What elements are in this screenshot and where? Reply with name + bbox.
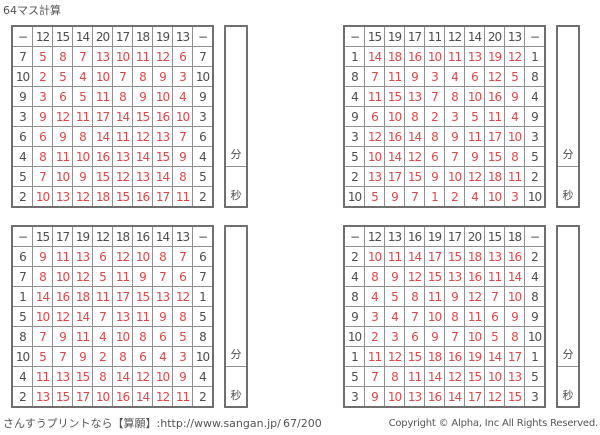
grid-row: 411151378101694 <box>344 87 545 107</box>
calc-grid-top-left: −1215142017181913−7587131011126710254107… <box>11 25 248 208</box>
answer-cell: 1 <box>425 187 445 208</box>
answer-cell: 16 <box>53 287 73 307</box>
row-header-cell: 9 <box>193 87 214 107</box>
answer-cell: 16 <box>93 147 113 167</box>
operator-cell: − <box>193 26 214 47</box>
grid-row: 105792864310 <box>12 347 213 367</box>
answer-cell: 15 <box>53 387 73 408</box>
answer-cell: 11 <box>485 107 505 127</box>
calc-table: −1517191218161413−6911136121087678101251… <box>11 225 214 408</box>
answer-cell: 4 <box>445 67 465 87</box>
answer-cell: 9 <box>73 347 93 367</box>
answer-cell: 10 <box>173 107 193 127</box>
answer-cell: 16 <box>485 87 505 107</box>
answer-cell: 10 <box>485 367 505 387</box>
answer-cell: 10 <box>385 107 405 127</box>
answer-cell: 4 <box>505 107 525 127</box>
answer-cell: 7 <box>173 247 193 267</box>
row-header-cell: 4 <box>344 87 365 107</box>
answer-cell: 14 <box>33 287 53 307</box>
row-header-cell: 5 <box>12 307 33 327</box>
grid-row: 75871310111267 <box>12 47 213 67</box>
answer-cell: 8 <box>445 307 465 327</box>
col-header-cell: 13 <box>505 26 525 47</box>
row-header-cell: 8 <box>525 287 546 307</box>
answer-cell: 7 <box>173 127 193 147</box>
minutes-write-area <box>226 227 246 346</box>
row-header-cell: 6 <box>12 247 33 267</box>
answer-cell: 3 <box>173 67 193 87</box>
answer-cell: 4 <box>73 67 93 87</box>
row-header-cell: 6 <box>193 247 214 267</box>
answer-cell: 13 <box>133 167 153 187</box>
answer-cell: 5 <box>505 67 525 87</box>
page-title: 64マス計算 <box>3 2 61 18</box>
answer-cell: 11 <box>113 127 133 147</box>
grid-row: 7810125119767 <box>12 267 213 287</box>
answer-cell: 11 <box>385 247 405 267</box>
col-header-cell: 20 <box>485 26 505 47</box>
row-header-cell: 7 <box>193 267 214 287</box>
answer-cell: 12 <box>505 47 525 67</box>
answer-cell: 14 <box>425 367 445 387</box>
col-header-cell: 16 <box>133 226 153 247</box>
answer-cell: 5 <box>173 327 193 347</box>
grid-row: 111121518161914171 <box>344 347 545 367</box>
row-header-cell: 3 <box>525 127 546 147</box>
operator-cell: − <box>12 26 33 47</box>
seconds-label: 秒 <box>226 166 246 206</box>
answer-cell: 6 <box>173 47 193 67</box>
answer-cell: 3 <box>505 187 525 208</box>
answer-cell: 13 <box>113 307 133 327</box>
col-header-cell: 11 <box>425 26 445 47</box>
answer-cell: 14 <box>385 147 405 167</box>
answer-cell: 9 <box>445 127 465 147</box>
answer-cell: 18 <box>73 287 93 307</box>
row-header-cell: 9 <box>525 107 546 127</box>
answer-cell: 15 <box>405 347 425 367</box>
answer-cell: 12 <box>485 387 505 408</box>
answer-cell: 9 <box>133 267 153 287</box>
answer-cell: 11 <box>53 147 73 167</box>
answer-cell: 13 <box>73 247 93 267</box>
answer-cell: 14 <box>365 47 385 67</box>
answer-cell: 8 <box>33 147 53 167</box>
calc-table: −1215142017181913−7587131011126710254107… <box>11 25 214 208</box>
answer-cell: 11 <box>53 247 73 267</box>
row-header-cell: 8 <box>344 67 365 87</box>
answer-cell: 10 <box>505 287 525 307</box>
answer-cell: 9 <box>173 147 193 167</box>
answer-cell: 10 <box>33 187 53 208</box>
operator-cell: − <box>193 226 214 247</box>
col-header-cell: 12 <box>445 26 465 47</box>
answer-cell: 6 <box>465 67 485 87</box>
answer-cell: 9 <box>425 327 445 347</box>
col-header-cell: 12 <box>33 26 53 47</box>
answer-cell: 6 <box>173 267 193 287</box>
operator-cell: − <box>525 26 546 47</box>
answer-cell: 8 <box>405 287 425 307</box>
answer-cell: 2 <box>93 347 113 367</box>
grid-row: −1215142017181913− <box>12 26 213 47</box>
answer-cell: 18 <box>93 187 113 208</box>
answer-cell: 14 <box>153 167 173 187</box>
answer-cell: 6 <box>53 87 73 107</box>
answer-cell: 14 <box>73 307 93 327</box>
answer-cell: 12 <box>113 247 133 267</box>
answer-cell: 12 <box>153 47 173 67</box>
answer-cell: 3 <box>425 67 445 87</box>
answer-cell: 9 <box>53 327 73 347</box>
answer-cell: 4 <box>153 347 173 367</box>
answer-cell: 19 <box>485 47 505 67</box>
row-header-cell: 8 <box>525 67 546 87</box>
row-header-cell: 10 <box>525 187 546 208</box>
answer-cell: 16 <box>133 187 153 208</box>
grid-row: 934710811699 <box>344 307 545 327</box>
calc-grid-bottom-right: −1213161917201518−2101114171518131624891… <box>343 225 580 408</box>
answer-cell: 2 <box>425 107 445 127</box>
footer-copyright: Copyright © Alpha, Inc All Rights Reserv… <box>389 418 598 429</box>
answer-cell: 5 <box>53 67 73 87</box>
answer-cell: 18 <box>485 167 505 187</box>
answer-cell: 13 <box>53 367 73 387</box>
answer-cell: 9 <box>505 87 525 107</box>
answer-cell: 10 <box>425 307 445 327</box>
answer-cell: 8 <box>73 127 93 147</box>
answer-cell: 8 <box>365 267 385 287</box>
footer-page-number: 67/200 <box>283 417 322 430</box>
answer-cell: 15 <box>485 147 505 167</box>
row-header-cell: 3 <box>12 107 33 127</box>
row-header-cell: 10 <box>525 327 546 347</box>
answer-cell: 7 <box>405 307 425 327</box>
grid-row: −1519171112142013− <box>344 26 545 47</box>
answer-cell: 5 <box>365 187 385 208</box>
answer-cell: 12 <box>465 287 485 307</box>
answer-cell: 13 <box>485 247 505 267</box>
row-header-cell: 4 <box>525 267 546 287</box>
answer-cell: 13 <box>53 187 73 208</box>
answer-cell: 4 <box>173 87 193 107</box>
answer-cell: 12 <box>445 367 465 387</box>
answer-cell: 12 <box>385 347 405 367</box>
answer-cell: 4 <box>465 187 485 208</box>
answer-cell: 8 <box>385 367 405 387</box>
answer-cell: 10 <box>365 147 385 167</box>
answer-cell: 8 <box>53 47 73 67</box>
answer-cell: 11 <box>405 367 425 387</box>
answer-cell: 15 <box>405 167 425 187</box>
grid-row: 8458119127108 <box>344 287 545 307</box>
answer-cell: 10 <box>93 387 113 408</box>
answer-cell: 8 <box>505 147 525 167</box>
answer-cell: 13 <box>465 47 485 67</box>
answer-cell: 7 <box>425 87 445 107</box>
answer-cell: 8 <box>445 87 465 107</box>
answer-cell: 15 <box>133 287 153 307</box>
answer-cell: 11 <box>365 347 385 367</box>
minutes-label: 分 <box>226 146 246 166</box>
col-header-cell: 12 <box>93 226 113 247</box>
row-header-cell: 10 <box>193 67 214 87</box>
answer-cell: 14 <box>405 247 425 267</box>
answer-cell: 3 <box>385 327 405 347</box>
col-header-cell: 19 <box>73 226 93 247</box>
answer-cell: 12 <box>173 287 193 307</box>
answer-cell: 10 <box>485 187 505 208</box>
answer-cell: 7 <box>153 267 173 287</box>
row-header-cell: 10 <box>12 67 33 87</box>
answer-cell: 11 <box>93 87 113 107</box>
answer-cell: 3 <box>365 307 385 327</box>
answer-cell: 10 <box>465 87 485 107</box>
answer-cell: 6 <box>485 307 505 327</box>
answer-cell: 3 <box>33 87 53 107</box>
calc-table: −1519171112142013−1141816101113191218711… <box>343 25 546 208</box>
row-header-cell: 1 <box>193 287 214 307</box>
calc-table: −1213161917201518−2101114171518131624891… <box>343 225 546 408</box>
answer-cell: 7 <box>93 307 113 327</box>
answer-cell: 15 <box>445 247 465 267</box>
answer-cell: 12 <box>53 107 73 127</box>
minutes-write-area <box>558 27 578 146</box>
grid-row: 21317159101218112 <box>344 167 545 187</box>
row-header-cell: 3 <box>193 107 214 127</box>
col-header-cell: 18 <box>113 226 133 247</box>
answer-cell: 6 <box>365 107 385 127</box>
row-header-cell: 5 <box>12 167 33 187</box>
row-header-cell: 1 <box>525 347 546 367</box>
grid-row: 5781114121510135 <box>344 367 545 387</box>
answer-cell: 12 <box>133 367 153 387</box>
answer-cell: 10 <box>73 147 93 167</box>
answer-cell: 16 <box>465 267 485 287</box>
seconds-label: 秒 <box>226 366 246 406</box>
answer-cell: 5 <box>465 107 485 127</box>
answer-cell: 16 <box>445 347 465 367</box>
row-header-cell: 7 <box>193 47 214 67</box>
answer-cell: 9 <box>365 387 385 408</box>
row-header-cell: 3 <box>344 387 365 408</box>
col-header-cell: 15 <box>53 26 73 47</box>
answer-cell: 4 <box>93 327 113 347</box>
answer-cell: 9 <box>465 147 485 167</box>
answer-cell: 13 <box>153 127 173 147</box>
answer-cell: 11 <box>73 327 93 347</box>
answer-cell: 14 <box>133 387 153 408</box>
col-header-cell: 14 <box>465 26 485 47</box>
answer-cell: 7 <box>33 167 53 187</box>
grid-row: 114181610111319121 <box>344 47 545 67</box>
time-box: 分 秒 <box>224 25 248 208</box>
answer-cell: 9 <box>53 127 73 147</box>
answer-cell: 13 <box>405 387 425 408</box>
answer-cell: 8 <box>173 167 193 187</box>
answer-cell: 6 <box>425 147 445 167</box>
grid-row: 3121614891117103 <box>344 127 545 147</box>
grid-row: 871193461258 <box>344 67 545 87</box>
row-header-cell: 2 <box>12 187 33 208</box>
row-header-cell: 9 <box>344 307 365 327</box>
col-header-cell: 14 <box>153 226 173 247</box>
col-header-cell: 16 <box>405 226 425 247</box>
answer-cell: 7 <box>445 327 465 347</box>
answer-cell: 15 <box>73 367 93 387</box>
answer-cell: 13 <box>93 47 113 67</box>
answer-cell: 17 <box>505 347 525 367</box>
grid-row: 4811101613141594 <box>12 147 213 167</box>
answer-cell: 6 <box>133 347 153 367</box>
answer-cell: 12 <box>405 147 425 167</box>
grid-row: −1213161917201518− <box>344 226 545 247</box>
row-header-cell: 2 <box>12 387 33 408</box>
col-header-cell: 13 <box>385 226 405 247</box>
row-header-cell: 5 <box>525 147 546 167</box>
answer-cell: 11 <box>173 187 193 208</box>
row-header-cell: 1 <box>525 47 546 67</box>
row-header-cell: 5 <box>193 167 214 187</box>
answer-cell: 14 <box>485 347 505 367</box>
grid-row: 1023697105810 <box>344 327 545 347</box>
answer-cell: 16 <box>153 107 173 127</box>
row-header-cell: 5 <box>344 367 365 387</box>
row-header-cell: 3 <box>344 127 365 147</box>
answer-cell: 2 <box>33 67 53 87</box>
row-header-cell: 6 <box>12 127 33 147</box>
answer-cell: 11 <box>425 287 445 307</box>
col-header-cell: 17 <box>53 226 73 247</box>
minutes-label: 分 <box>558 146 578 166</box>
grid-row: 4111315814121094 <box>12 367 213 387</box>
answer-cell: 10 <box>365 247 385 267</box>
answer-cell: 13 <box>33 387 53 408</box>
minutes-label: 分 <box>558 346 578 366</box>
answer-cell: 3 <box>445 107 465 127</box>
grid-row: 1059712410310 <box>344 187 545 208</box>
row-header-cell: 2 <box>344 247 365 267</box>
answer-cell: 9 <box>405 67 425 87</box>
row-header-cell: 8 <box>12 327 33 347</box>
answer-cell: 14 <box>113 107 133 127</box>
answer-cell: 9 <box>385 187 405 208</box>
answer-cell: 11 <box>173 387 193 408</box>
answer-cell: 13 <box>365 167 385 187</box>
grid-row: 879114108658 <box>12 327 213 347</box>
answer-cell: 3 <box>173 347 193 367</box>
answer-cell: 6 <box>33 127 53 147</box>
answer-cell: 11 <box>73 107 93 127</box>
grid-row: 213151710161412112 <box>12 387 213 408</box>
answer-cell: 10 <box>113 327 133 347</box>
answer-cell: 7 <box>73 47 93 67</box>
answer-cell: 7 <box>113 67 133 87</box>
answer-cell: 10 <box>505 127 525 147</box>
answer-cell: 8 <box>405 107 425 127</box>
answer-cell: 7 <box>53 347 73 367</box>
row-header-cell: 4 <box>193 147 214 167</box>
row-header-cell: 7 <box>12 267 33 287</box>
grid-row: 4891215131611144 <box>344 267 545 287</box>
answer-cell: 11 <box>465 307 485 327</box>
row-header-cell: 2 <box>525 167 546 187</box>
row-header-cell: 5 <box>525 367 546 387</box>
row-header-cell: 8 <box>193 327 214 347</box>
answer-cell: 9 <box>173 367 193 387</box>
answer-cell: 5 <box>485 327 505 347</box>
answer-cell: 17 <box>385 167 405 187</box>
answer-cell: 12 <box>73 187 93 208</box>
grid-row: 39121117141516103 <box>12 107 213 127</box>
answer-cell: 14 <box>445 387 465 408</box>
answer-cell: 9 <box>73 167 93 187</box>
col-header-cell: 12 <box>365 226 385 247</box>
answer-cell: 11 <box>365 87 385 107</box>
row-header-cell: 4 <box>193 367 214 387</box>
answer-cell: 12 <box>485 67 505 87</box>
answer-cell: 15 <box>153 147 173 167</box>
col-header-cell: 15 <box>365 26 385 47</box>
row-header-cell: 4 <box>12 147 33 167</box>
row-header-cell: 9 <box>344 107 365 127</box>
answer-cell: 11 <box>485 267 505 287</box>
answer-cell: 18 <box>385 47 405 67</box>
row-header-cell: 10 <box>12 347 33 367</box>
time-box: 分 秒 <box>224 225 248 408</box>
answer-cell: 8 <box>133 67 153 87</box>
col-header-cell: 14 <box>73 26 93 47</box>
answer-cell: 9 <box>445 287 465 307</box>
answer-cell: 8 <box>113 87 133 107</box>
answer-cell: 12 <box>465 167 485 187</box>
answer-cell: 19 <box>465 347 485 367</box>
row-header-cell: 2 <box>193 187 214 208</box>
answer-cell: 9 <box>153 67 173 87</box>
answer-cell: 14 <box>93 127 113 147</box>
row-header-cell: 3 <box>525 387 546 408</box>
answer-cell: 11 <box>113 267 133 287</box>
answer-cell: 12 <box>153 387 173 408</box>
grid-row: 51014126791585 <box>344 147 545 167</box>
row-header-cell: 10 <box>193 347 214 367</box>
answer-cell: 14 <box>405 127 425 147</box>
answer-cell: 13 <box>153 287 173 307</box>
answer-cell: 12 <box>53 307 73 327</box>
answer-cell: 9 <box>153 307 173 327</box>
answer-cell: 13 <box>505 367 525 387</box>
answer-cell: 8 <box>133 327 153 347</box>
operator-cell: − <box>344 26 365 47</box>
grid-row: 961082351149 <box>344 107 545 127</box>
calc-grid-bottom-left: −1517191218161413−6911136121087678101251… <box>11 225 248 408</box>
answer-cell: 9 <box>33 107 53 127</box>
operator-cell: − <box>525 226 546 247</box>
grid-row: −1517191218161413− <box>12 226 213 247</box>
answer-cell: 10 <box>153 367 173 387</box>
grid-row: 936511891049 <box>12 87 213 107</box>
answer-cell: 11 <box>385 67 405 87</box>
answer-cell: 7 <box>33 327 53 347</box>
answer-cell: 15 <box>133 107 153 127</box>
answer-cell: 12 <box>365 127 385 147</box>
grid-row: 1025410789310 <box>12 67 213 87</box>
col-header-cell: 18 <box>505 226 525 247</box>
col-header-cell: 18 <box>133 26 153 47</box>
row-header-cell: 9 <box>525 307 546 327</box>
answer-cell: 11 <box>33 367 53 387</box>
